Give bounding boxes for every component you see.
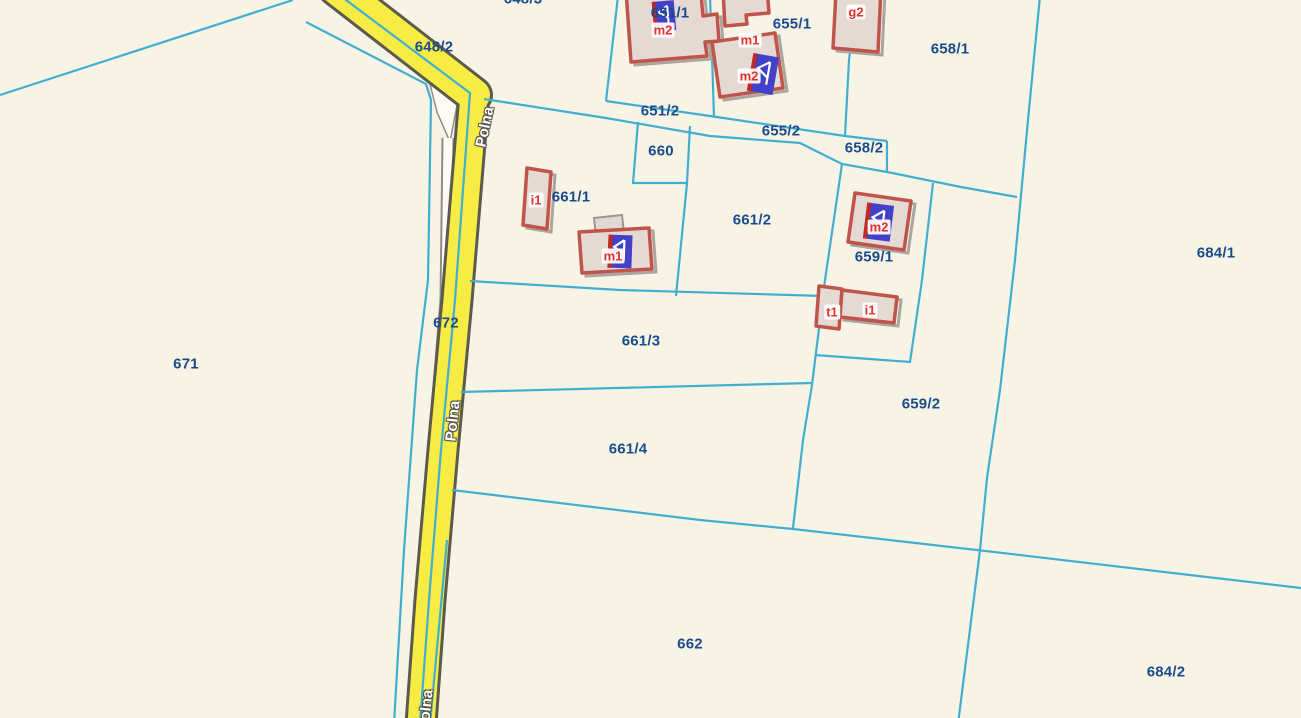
boundary-road-left	[306, 22, 431, 718]
boundary-band-lower	[484, 99, 1017, 197]
boundary-to-left-edge	[0, 0, 293, 95]
boundary-648-3-651-1	[606, 0, 618, 101]
cadastral-map-canvas[interactable]: 648/3648/2651/1655/1658/1651/2655/2658/2…	[0, 0, 1301, 718]
boundary-661-1-661-2	[676, 183, 687, 296]
boundary-661-3-661-4	[461, 383, 812, 392]
boundary-661-1-661-3	[470, 281, 824, 296]
boundary-661-659-left	[793, 164, 842, 528]
parcel-boundaries	[0, 0, 1301, 718]
boundary-662-diagonal	[452, 490, 1301, 588]
address-flag-icon	[863, 203, 894, 242]
building-i1-659-1[interactable]	[840, 290, 897, 323]
building-t1-659-1[interactable]	[816, 286, 842, 329]
building-m1-655-1[interactable]	[723, 0, 769, 26]
boundary-684-left	[958, 0, 1040, 718]
address-flag-icon	[652, 0, 677, 32]
buildings	[523, 0, 911, 329]
building-i1-661-1[interactable]	[523, 168, 551, 229]
address-flag-icon	[607, 235, 632, 269]
building-g2-658-1[interactable]	[833, 0, 881, 52]
map-vector-layer	[0, 0, 1301, 718]
